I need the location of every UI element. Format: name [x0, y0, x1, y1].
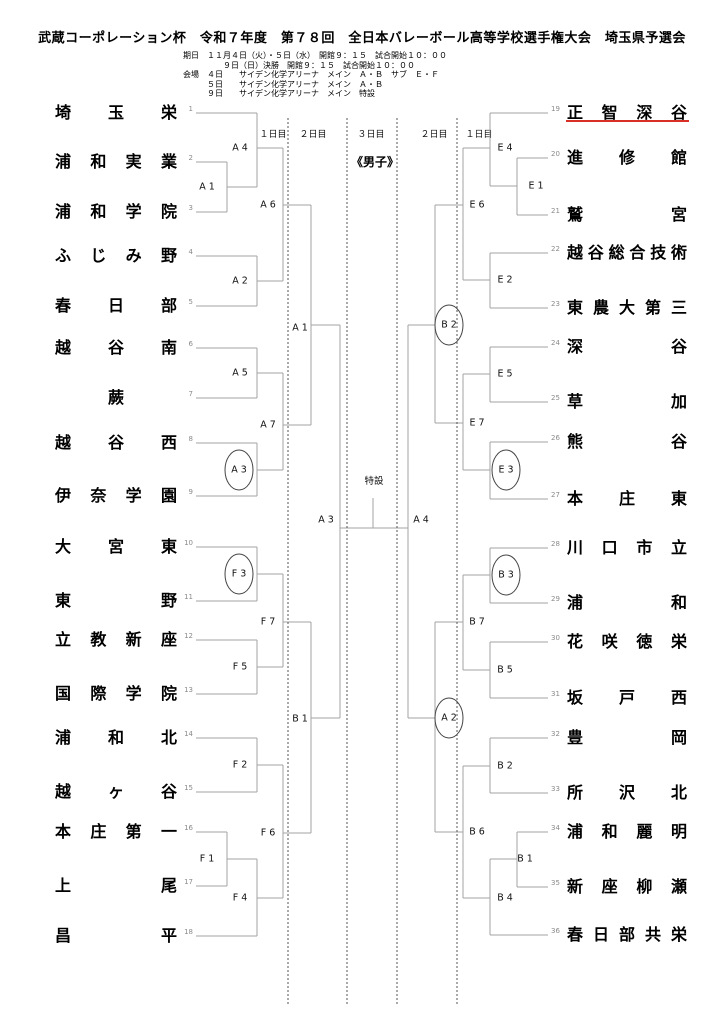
team-name-char: 栄 [161, 104, 177, 122]
match-label: A 4 [232, 143, 248, 154]
team-name-char: 市 [636, 539, 652, 557]
seed-number: 32 [551, 730, 560, 738]
match-label: E 1 [528, 181, 543, 192]
team-name-char: 玉 [108, 104, 124, 122]
team-name-char: 座 [161, 631, 177, 649]
team-name-char: 谷 [671, 338, 687, 356]
team-name-char: 鷲 [567, 206, 583, 224]
seed-number: 26 [551, 434, 560, 442]
seed-number: 10 [181, 539, 193, 547]
team-name-char: 栄 [671, 926, 687, 944]
team-name: 国際学院 [55, 685, 177, 703]
seed-number: 3 [181, 204, 193, 212]
match-label: B 3 [498, 570, 514, 581]
match-label: B 1 [517, 854, 533, 865]
team-name-char: 谷 [588, 244, 604, 262]
seed-number: 34 [551, 824, 560, 832]
match-label: B 5 [497, 665, 513, 676]
team-name-char: 柳 [636, 878, 652, 896]
team-name-char: 新 [126, 631, 142, 649]
team-name-char: 戸 [619, 689, 635, 707]
team-name-char: 岡 [671, 729, 687, 747]
team-name-char: 麗 [636, 823, 652, 841]
team-name: 進修館 [567, 149, 687, 167]
team-name-char: 宮 [108, 538, 124, 556]
seed-number: 6 [181, 340, 193, 348]
seed-number: 18 [181, 928, 193, 936]
team-name: 浦和学院 [55, 203, 177, 221]
team-name-char: 立 [55, 631, 71, 649]
team-name: 立教新座 [55, 631, 177, 649]
match-label: A 1 [292, 323, 308, 334]
team-name-char: 三 [671, 299, 687, 317]
team-name-char: 野 [161, 592, 177, 610]
team-name-char: 総 [609, 244, 625, 262]
team-name-char: 瀬 [671, 878, 687, 896]
team-name-char: じ [90, 247, 106, 265]
seed-number: 30 [551, 634, 560, 642]
team-name-char: 日 [108, 297, 124, 315]
seed-number: 28 [551, 540, 560, 548]
team-name: 昌平 [55, 927, 177, 945]
seed-number: 11 [181, 593, 193, 601]
team-name-char: 平 [161, 927, 177, 945]
match-label: A 5 [232, 368, 248, 379]
team-name: 本庄東 [567, 490, 687, 508]
match-label: A 7 [260, 420, 276, 431]
team-name-char: 修 [619, 149, 635, 167]
team-name-char: 学 [126, 685, 142, 703]
seed-number: 35 [551, 879, 560, 887]
team-name: 上尾 [55, 877, 177, 895]
seed-number: 14 [181, 730, 193, 738]
team-name-char: 西 [671, 689, 687, 707]
team-name-char: 農 [593, 299, 609, 317]
team-name: 東農大第三 [567, 299, 687, 317]
team-name-char: 奈 [90, 487, 106, 505]
match-label: E 7 [469, 418, 484, 429]
match-label: A 3 [231, 465, 247, 476]
match-label: F 2 [233, 760, 248, 771]
match-label: B 7 [469, 617, 485, 628]
team-name-char: 浦 [55, 153, 71, 171]
team-name-char: 日 [593, 926, 609, 944]
team-name-char: 国 [55, 685, 71, 703]
team-name-char: 越 [55, 434, 71, 452]
seed-number: 4 [181, 248, 193, 256]
team-name: 伊奈学園 [55, 487, 177, 505]
team-name-char: 浦 [567, 823, 583, 841]
match-label: F 7 [261, 617, 276, 628]
match-label: F 1 [200, 854, 215, 865]
team-name-char: 深 [567, 338, 583, 356]
match-label: F 3 [232, 569, 247, 580]
match-label: A 2 [441, 713, 457, 724]
tournament-bracket-page: 武蔵コーポレーション杯 令和７年度 第７８回 全日本バレーボール高等学校選手権大… [0, 0, 724, 1024]
team-name: 草加 [567, 393, 687, 411]
match-label: E 3 [498, 465, 513, 476]
team-name-char: 蕨 [108, 389, 124, 407]
team-name-char: 口 [602, 539, 618, 557]
team-name: 春日部 [55, 297, 177, 315]
team-name-char: 和 [90, 203, 106, 221]
team-name-char: 園 [161, 487, 177, 505]
team-name-char: 部 [161, 297, 177, 315]
match-label: E 2 [497, 275, 512, 286]
team-name: 東野 [55, 592, 177, 610]
team-name-char: 北 [161, 729, 177, 747]
team-name-char: 上 [55, 877, 71, 895]
bracket-lines [196, 113, 548, 936]
team-name-char: 本 [55, 823, 71, 841]
team-name-char: 川 [567, 539, 583, 557]
seed-number: 15 [181, 784, 193, 792]
team-name-char: 谷 [161, 783, 177, 801]
team-name: 越谷南 [55, 339, 177, 357]
seed-number: 9 [181, 488, 193, 496]
team-name-char: 立 [671, 539, 687, 557]
team-name-char: 教 [90, 631, 106, 649]
team-name-char: 浦 [55, 203, 71, 221]
seed-number: 33 [551, 785, 560, 793]
team-name: 深谷 [567, 338, 687, 356]
seed-number: 12 [181, 632, 193, 640]
seed-number: 36 [551, 927, 560, 935]
team-name: 浦和実業 [55, 153, 177, 171]
seed-number: 31 [551, 690, 560, 698]
team-name-char: 咲 [602, 633, 618, 651]
team-name-char: 熊 [567, 433, 583, 451]
match-label: A 4 [413, 515, 429, 526]
team-name-char: 部 [619, 926, 635, 944]
team-name-char: 春 [55, 297, 71, 315]
team-name: 新座柳瀬 [567, 878, 687, 896]
match-label: E 5 [497, 369, 512, 380]
seed-number: 27 [551, 491, 560, 499]
highlight-underline [566, 120, 689, 122]
match-label: E 4 [497, 143, 512, 154]
day-separator-lines [288, 118, 457, 1006]
team-name-char: 南 [161, 339, 177, 357]
team-name-char: ふ [55, 247, 71, 265]
team-name: 熊谷 [567, 433, 687, 451]
team-name-char: 加 [671, 393, 687, 411]
team-name-char: 春 [567, 926, 583, 944]
team-name-char: 院 [161, 203, 177, 221]
seed-number: 23 [551, 300, 560, 308]
team-name-char: 一 [161, 823, 177, 841]
team-name: 大宮東 [55, 538, 177, 556]
team-name-char: 宮 [671, 206, 687, 224]
team-name-char: 浦 [567, 594, 583, 612]
team-name-char: 共 [645, 926, 661, 944]
team-name-char: 合 [629, 244, 645, 262]
team-name-char: 谷 [671, 433, 687, 451]
team-name-char: 際 [90, 685, 106, 703]
team-name-char: 学 [126, 487, 142, 505]
team-name-char: 座 [602, 878, 618, 896]
team-name: 越谷総合技術 [567, 244, 687, 262]
team-name-char: 東 [567, 299, 583, 317]
team-name-char: 和 [671, 594, 687, 612]
team-name-char: 学 [126, 203, 142, 221]
team-name-char: 埼 [55, 104, 71, 122]
team-name-char: 越 [567, 244, 583, 262]
match-label: A 1 [199, 182, 215, 193]
team-name: 埼玉栄 [55, 104, 177, 122]
seed-number: 25 [551, 394, 560, 402]
match-label: B 2 [441, 320, 457, 331]
team-name: 鷲宮 [567, 206, 687, 224]
team-name-char: 和 [602, 823, 618, 841]
seed-number: 1 [181, 105, 193, 113]
team-name: 花咲徳栄 [567, 633, 687, 651]
seed-number: 13 [181, 686, 193, 694]
match-label: B 6 [469, 827, 485, 838]
team-name-char: 伊 [55, 487, 71, 505]
team-name-char: 西 [161, 434, 177, 452]
team-name-char: ヶ [108, 783, 124, 801]
team-name-char: 庄 [619, 490, 635, 508]
team-name: 浦和麗明 [567, 823, 687, 841]
match-label: A 3 [318, 515, 334, 526]
team-name: 越谷西 [55, 434, 177, 452]
match-label: F 6 [261, 828, 276, 839]
team-name-char: 大 [55, 538, 71, 556]
team-name-char: 東 [161, 538, 177, 556]
match-label: E 6 [469, 200, 484, 211]
team-name-char: 第 [645, 299, 661, 317]
team-name-char: 尾 [161, 877, 177, 895]
team-name: 坂戸西 [567, 689, 687, 707]
team-name-char: 明 [671, 823, 687, 841]
team-name-char: 花 [567, 633, 583, 651]
seed-number: 19 [551, 105, 560, 113]
seed-number: 29 [551, 595, 560, 603]
team-name: 春日部共栄 [567, 926, 687, 944]
team-name-char: 館 [671, 149, 687, 167]
team-name-char: 浦 [55, 729, 71, 747]
team-name-char: 所 [567, 784, 583, 802]
team-name-char: 和 [90, 153, 106, 171]
seed-number: 24 [551, 339, 560, 347]
team-name-char: 院 [161, 685, 177, 703]
team-name-char: 術 [671, 244, 687, 262]
team-name-char: 大 [619, 299, 635, 317]
seed-number: 7 [181, 390, 193, 398]
team-name: 越ヶ谷 [55, 783, 177, 801]
team-name: 川口市立 [567, 539, 687, 557]
match-label: B 2 [497, 761, 513, 772]
team-name-char: 野 [161, 247, 177, 265]
seed-number: 17 [181, 878, 193, 886]
team-name-char: 新 [567, 878, 583, 896]
match-label: A 2 [232, 276, 248, 287]
match-label: F 5 [233, 662, 248, 673]
match-label: A 6 [260, 200, 276, 211]
team-name-char: 昌 [55, 927, 71, 945]
team-name-char: 庄 [90, 823, 106, 841]
team-name: ふじみ野 [55, 247, 177, 265]
seed-number: 2 [181, 154, 193, 162]
team-name-char: 北 [671, 784, 687, 802]
match-label: B 1 [292, 714, 308, 725]
seed-number: 20 [551, 150, 560, 158]
team-name-char: 業 [161, 153, 177, 171]
seed-number: 5 [181, 298, 193, 306]
team-name-char: 進 [567, 149, 583, 167]
team-name: 浦和 [567, 594, 687, 612]
team-name: 本庄第一 [55, 823, 177, 841]
team-name-char: 谷 [108, 339, 124, 357]
match-label: B 4 [497, 893, 513, 904]
team-name-char: 第 [126, 823, 142, 841]
team-name-char: 坂 [567, 689, 583, 707]
team-name: 豊岡 [567, 729, 687, 747]
seed-number: 16 [181, 824, 193, 832]
team-name-char: 草 [567, 393, 583, 411]
team-name-char: 越 [55, 783, 71, 801]
seed-number: 21 [551, 207, 560, 215]
seed-number: 8 [181, 435, 193, 443]
team-name-char: 栄 [671, 633, 687, 651]
team-name: 蕨 [55, 389, 177, 407]
team-name-char: 豊 [567, 729, 583, 747]
team-name-char: 越 [55, 339, 71, 357]
team-name-char: 東 [55, 592, 71, 610]
match-label: F 4 [233, 893, 248, 904]
team-name-char: 和 [108, 729, 124, 747]
team-name-char: 谷 [108, 434, 124, 452]
team-name-char: 実 [126, 153, 142, 171]
team-name-char: み [126, 247, 142, 265]
team-name-char: 本 [567, 490, 583, 508]
team-name-char: 技 [650, 244, 666, 262]
seed-number: 22 [551, 245, 560, 253]
team-name-char: 沢 [619, 784, 635, 802]
team-name-char: 東 [671, 490, 687, 508]
team-name-char: 徳 [636, 633, 652, 651]
team-name: 浦和北 [55, 729, 177, 747]
team-name: 所沢北 [567, 784, 687, 802]
